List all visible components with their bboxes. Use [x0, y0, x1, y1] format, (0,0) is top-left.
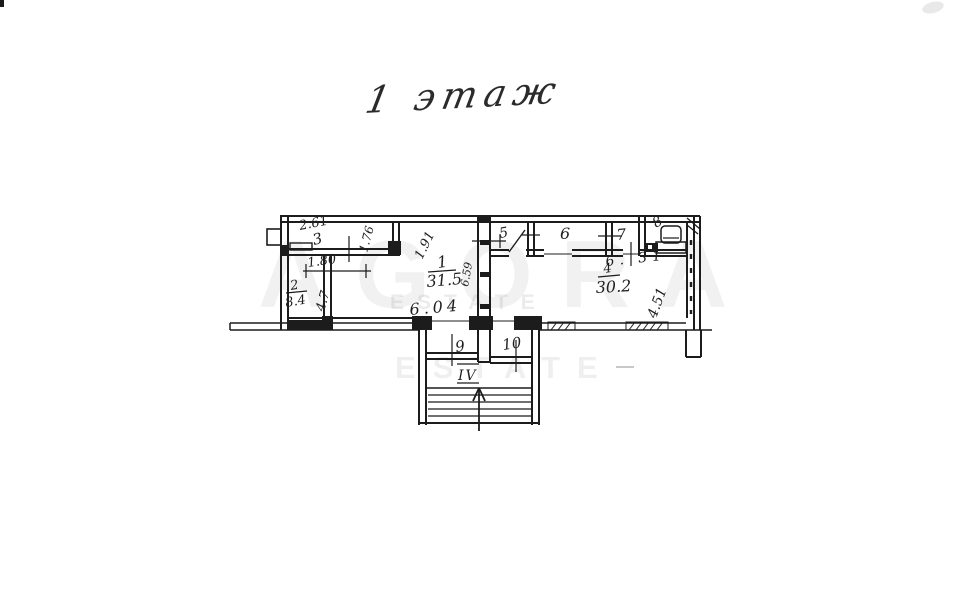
stairwell-label: IV [457, 368, 478, 384]
dim-6-04: 6.04 [409, 296, 462, 319]
room1-area: 31.5 [426, 269, 463, 291]
exterior-column [686, 330, 701, 357]
scanned-floor-plan-page: AGORA ESTATE ESTATE 1этаж [0, 0, 960, 612]
room4-area: 30.2 [595, 276, 632, 297]
central-shaft [477, 215, 491, 362]
dim-6-31: 6. 31 [605, 248, 667, 270]
toilet-icon [661, 226, 681, 243]
room7-number: 7 [616, 225, 628, 244]
room2-number: 2 [288, 278, 300, 294]
door-swing-room5 [509, 230, 525, 252]
dim-4-51: 4.51 [644, 286, 670, 322]
dim-6-59: 6.59 [458, 261, 475, 287]
room5-number: 5 [498, 225, 510, 242]
room9-number: 9 [454, 337, 466, 356]
room1-number: 1 [436, 252, 449, 272]
dim-1-91: 1.91 [412, 229, 438, 262]
dim-1-80: 1.80 [306, 252, 337, 271]
room10-number: 10 [501, 333, 523, 354]
room2-area: 8.4 [284, 293, 307, 311]
floor-plan-drawing: 1 31.5 2 8.4 3 4 30.2 5 6 7 8 9 10 IV 2.… [0, 0, 960, 612]
room6-number: 6 [560, 224, 570, 243]
